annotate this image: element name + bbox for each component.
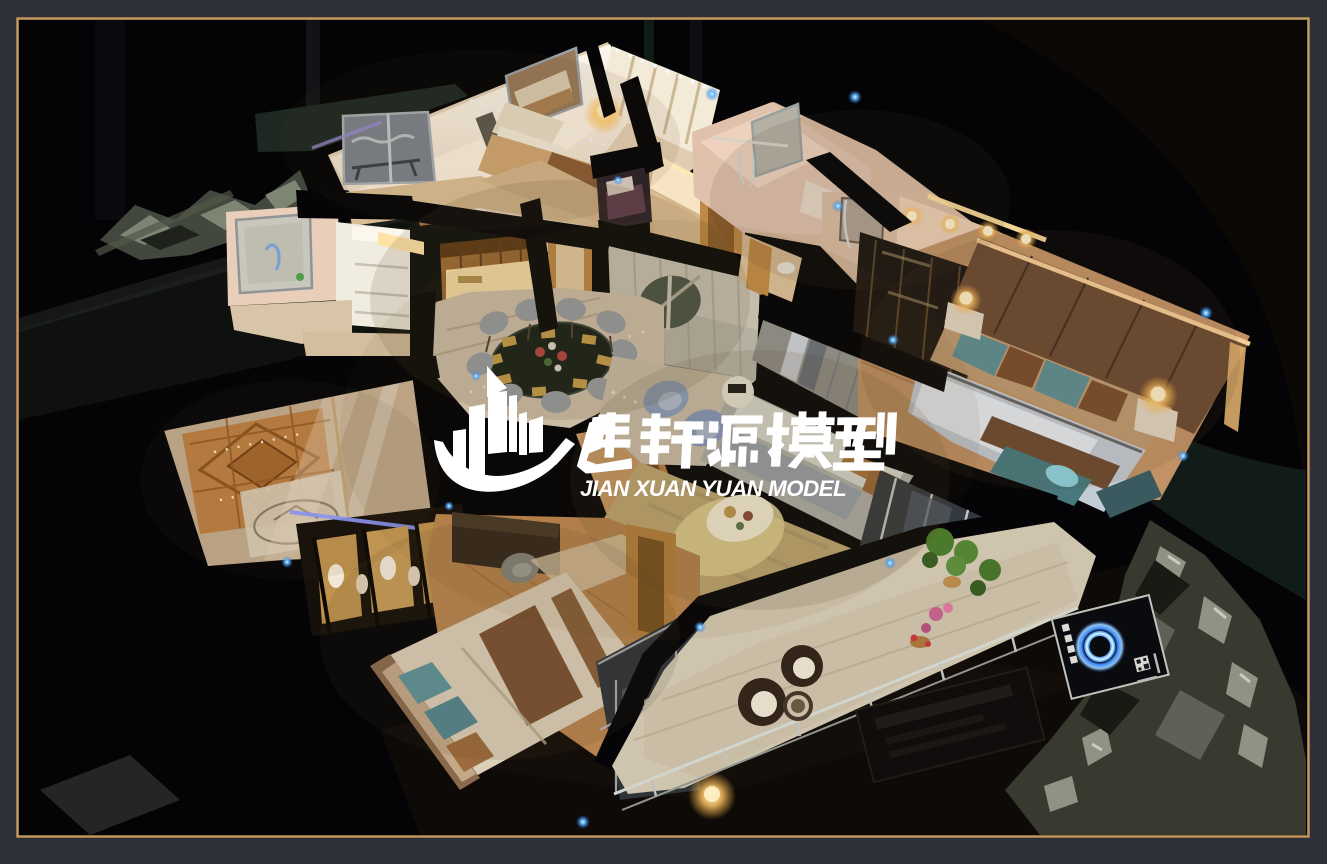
svg-text:JIAN XUAN YUAN MODEL: JIAN XUAN YUAN MODEL [580, 476, 848, 501]
